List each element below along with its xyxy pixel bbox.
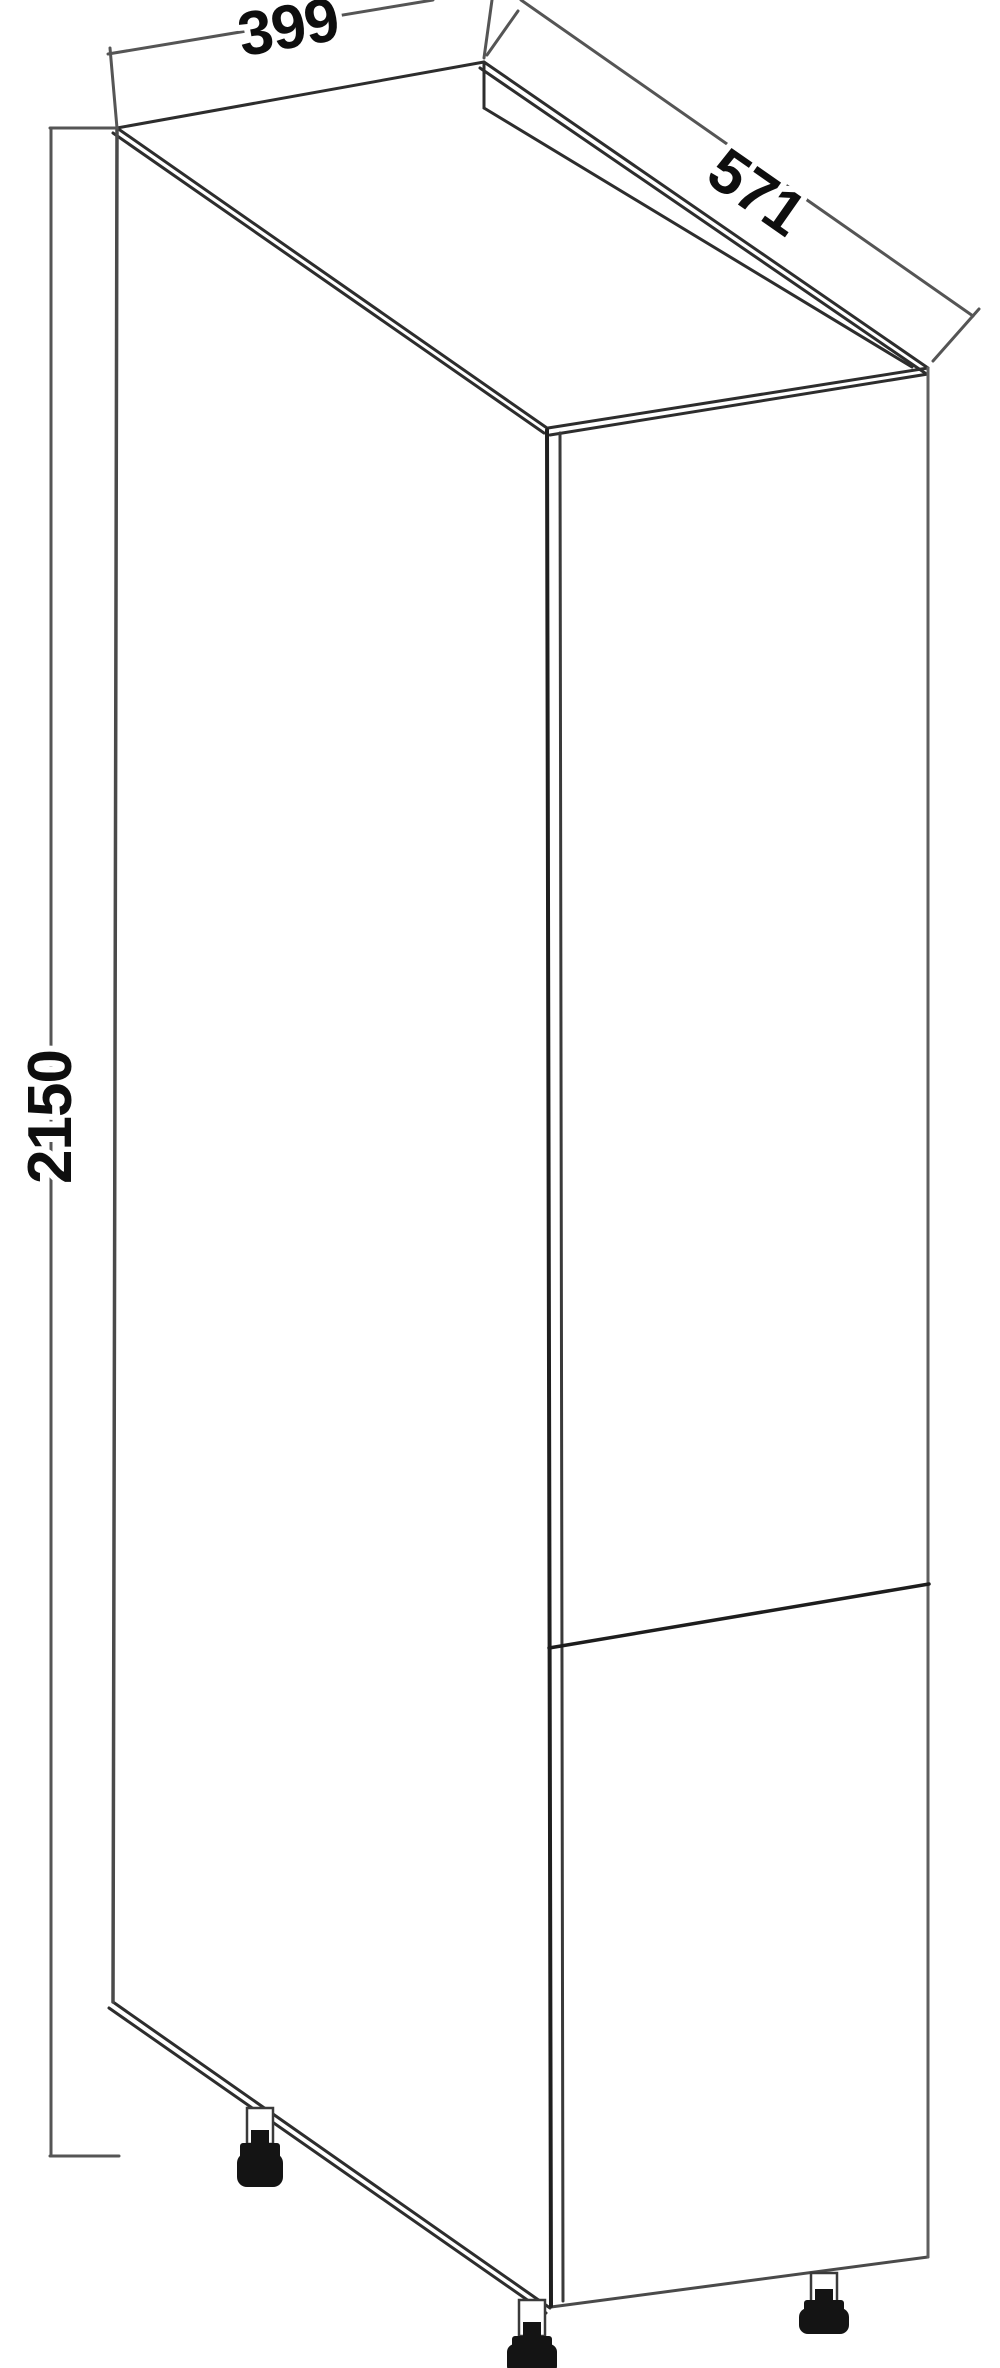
side-panel-left-edge <box>113 129 117 2002</box>
top-face-right-edge-outer <box>484 62 928 368</box>
side-panel-bottom-edge-outer <box>113 2002 550 2308</box>
front-top-edge-inner <box>550 374 928 435</box>
top-panel-underside-edge <box>484 108 912 367</box>
dimension-labels: 399 571 2150 <box>16 0 817 1184</box>
side-panel-top-edge-outer <box>117 128 547 428</box>
adjustable-foot-back <box>237 2108 283 2187</box>
cabinet-carcass <box>109 62 928 2313</box>
front-left-corner-edge <box>547 430 551 2306</box>
foot-base <box>507 2344 557 2368</box>
extension-line <box>933 309 979 361</box>
door-divider-line <box>549 1584 929 1648</box>
cabinet-dimension-drawing: 399 571 2150 <box>0 0 1000 2368</box>
cabinet-outline-secondary <box>113 129 928 2307</box>
extension-line <box>487 11 518 55</box>
height-dimension-label: 2150 <box>16 1050 85 1184</box>
door-left-edge <box>560 433 563 2301</box>
width-dimension-label: 399 <box>233 0 344 70</box>
side-panel-bottom-edge-inner <box>109 2008 546 2313</box>
depth-dimension-label: 571 <box>695 135 817 249</box>
front-bottom-edge <box>551 2257 928 2307</box>
foot-screw <box>523 2322 541 2338</box>
top-face-back-edge <box>117 62 484 128</box>
front-top-edge-outer <box>548 368 928 428</box>
top-face-right-edge-inner <box>480 68 925 373</box>
foot-base <box>799 2308 849 2334</box>
extension-line <box>110 48 117 128</box>
front-face-lines <box>547 368 929 2306</box>
technical-drawing-canvas: 399 571 2150 <box>0 0 1000 2368</box>
adjustable-feet <box>237 2108 849 2368</box>
upper-door-panel <box>560 374 928 1646</box>
side-panel-top-edge-inner <box>113 133 544 433</box>
adjustable-foot-front-right <box>799 2273 849 2334</box>
lower-door-panel <box>560 1584 928 2301</box>
door-regions <box>560 374 928 2301</box>
foot-base <box>237 2153 283 2187</box>
adjustable-foot-front-left <box>507 2300 557 2368</box>
